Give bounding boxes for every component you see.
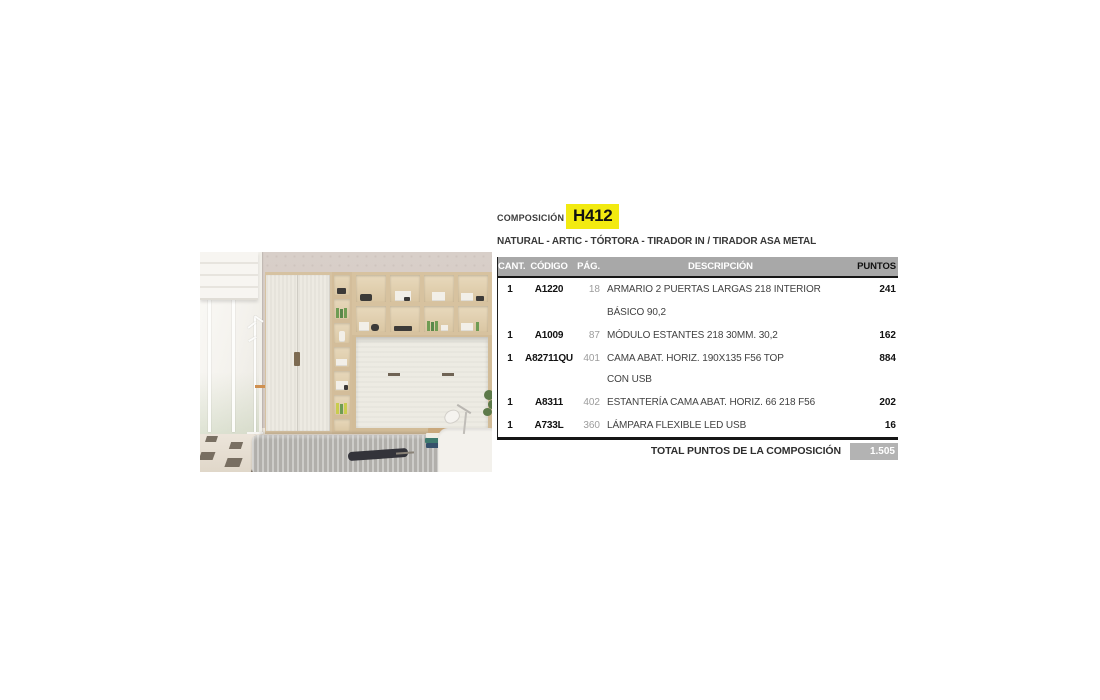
room-photo xyxy=(200,252,492,472)
cell-codigo: A1009 xyxy=(522,324,576,347)
floor-tile xyxy=(229,442,243,449)
descripcion-line-1: CAMA ABAT. HORIZ. 190X135 F56 TOP xyxy=(607,347,834,370)
total-row: TOTAL PUNTOS DE LA COMPOSICIÓN 1.505 xyxy=(497,437,898,460)
cell-puntos: 884 xyxy=(834,347,898,370)
cubby-grid xyxy=(352,272,492,335)
roman-blind xyxy=(200,252,258,300)
cell-descripcion: ESTANTERÍA CAMA ABAT. HORIZ. 66 218 F56 xyxy=(600,391,834,414)
shelf-cell xyxy=(334,323,350,343)
wardrobe xyxy=(265,272,332,434)
shelf-cell xyxy=(334,347,350,367)
cubby-cell xyxy=(458,275,488,302)
cell-codigo: A733L xyxy=(522,414,576,437)
col-header-descripcion: DESCRIPCIÓN xyxy=(600,257,834,276)
cell-pag: 360 xyxy=(576,414,600,437)
col-header-puntos: PUNTOS xyxy=(834,257,898,276)
col-header-codigo: CÓDIGO xyxy=(522,257,576,276)
cubby-cell xyxy=(390,306,420,333)
floor-tile xyxy=(205,436,218,442)
table-row: 1 A1220 18 ARMARIO 2 PUERTAS LARGAS 218 … xyxy=(498,278,898,324)
cell-puntos: 202 xyxy=(834,391,898,414)
shelf-cell xyxy=(334,371,350,391)
bed-front-panel xyxy=(356,337,488,428)
window-frame xyxy=(259,252,262,434)
cell-puntos: 162 xyxy=(834,324,898,347)
cell-pag: 402 xyxy=(576,391,600,414)
plant xyxy=(484,390,492,400)
cell-cant: 1 xyxy=(498,347,522,370)
table-row: 1 A82711QU 401 CAMA ABAT. HORIZ. 190X135… xyxy=(498,347,898,391)
col-header-cant: CANT. xyxy=(498,257,522,276)
cubby-cell xyxy=(356,306,386,333)
cell-cant: 1 xyxy=(498,324,522,347)
plant xyxy=(483,408,492,416)
composition-code: H412 xyxy=(566,204,619,229)
col-header-pag: PÁG. xyxy=(576,257,600,276)
cell-descripcion: MÓDULO ESTANTES 218 30MM. 30,2 xyxy=(600,324,834,347)
cubby-cell xyxy=(390,275,420,302)
shelf-column xyxy=(332,272,352,434)
bed-handle xyxy=(388,373,400,376)
total-points-value: 1.505 xyxy=(850,443,898,460)
cell-codigo: A82711QU xyxy=(522,347,576,370)
cell-pag: 87 xyxy=(576,324,600,347)
table-header-row: CANT. CÓDIGO PÁG. DESCRIPCIÓN PUNTOS xyxy=(498,257,898,278)
cubby-cell xyxy=(458,306,488,333)
cell-cant: 1 xyxy=(498,391,522,414)
composition-label: COMPOSICIÓN xyxy=(497,213,564,223)
cell-puntos: 241 xyxy=(834,278,898,301)
cell-descripcion: ARMARIO 2 PUERTAS LARGAS 218 INTERIOR BÁ… xyxy=(600,278,834,324)
price-table: CANT. CÓDIGO PÁG. DESCRIPCIÓN PUNTOS 1 A… xyxy=(497,257,898,460)
total-label: TOTAL PUNTOS DE LA COMPOSICIÓN xyxy=(651,443,841,460)
shelf-cell xyxy=(334,299,350,319)
table-row: 1 A8311 402 ESTANTERÍA CAMA ABAT. HORIZ.… xyxy=(498,391,898,414)
desk xyxy=(438,428,492,472)
table-row: 1 A733L 360 LÁMPARA FLEXIBLE LED USB 16 xyxy=(498,414,898,437)
fold-down-bed xyxy=(352,335,492,434)
shelf-cell xyxy=(334,395,350,415)
cell-pag: 18 xyxy=(576,278,600,301)
cell-pag: 401 xyxy=(576,347,600,370)
finishes-line: NATURAL - ARTIC - TÓRTORA - TIRADOR IN /… xyxy=(497,236,816,247)
shelf-cell xyxy=(334,419,350,431)
cell-codigo: A8311 xyxy=(522,391,576,414)
cubby-cell xyxy=(356,275,386,302)
table-row: 1 A1009 87 MÓDULO ESTANTES 218 30MM. 30,… xyxy=(498,324,898,347)
coat-rack xyxy=(254,316,256,434)
cell-descripcion: LÁMPARA FLEXIBLE LED USB xyxy=(600,414,834,437)
cell-cant: 1 xyxy=(498,278,522,301)
wardrobe-handle xyxy=(294,352,300,366)
cell-cant: 1 xyxy=(498,414,522,437)
cell-codigo: A1220 xyxy=(522,278,576,301)
bed-handle xyxy=(442,373,454,376)
cell-puntos: 16 xyxy=(834,414,898,437)
cubby-cell xyxy=(424,275,454,302)
cell-descripcion: CAMA ABAT. HORIZ. 190X135 F56 TOP CON US… xyxy=(600,347,834,390)
descripcion-line-2: CON USB xyxy=(607,370,834,390)
cubby-cell xyxy=(424,306,454,333)
shelf-cell xyxy=(334,275,350,295)
